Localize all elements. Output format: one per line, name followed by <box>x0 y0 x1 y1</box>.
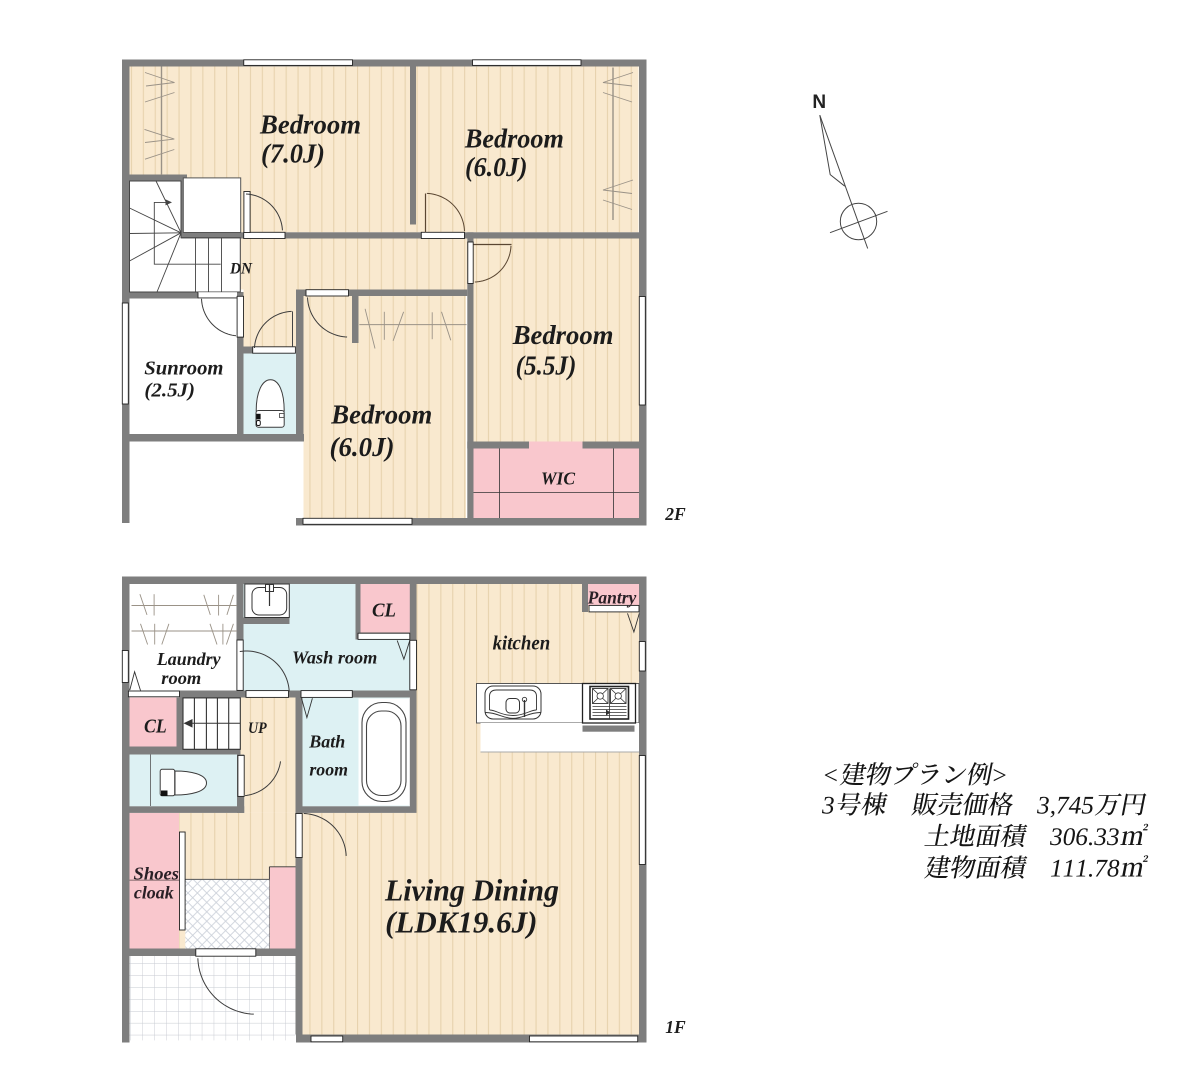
svg-text:Bedroom: Bedroom <box>259 110 361 140</box>
svg-text:Bedroom: Bedroom <box>464 124 564 154</box>
svg-text:WIC: WIC <box>541 469 576 489</box>
svg-text:Bath: Bath <box>308 732 345 752</box>
svg-text:cloak: cloak <box>134 883 174 903</box>
svg-text:UP: UP <box>248 720 267 737</box>
svg-text:Wash room: Wash room <box>292 648 377 668</box>
svg-text:CL: CL <box>372 600 396 622</box>
svg-text:room: room <box>161 668 201 688</box>
svg-text:Pantry: Pantry <box>587 588 637 608</box>
svg-text:Shoes: Shoes <box>134 864 180 884</box>
svg-text:1F: 1F <box>665 1017 686 1037</box>
svg-text:Sunroom: Sunroom <box>144 358 223 380</box>
svg-text:Laundry: Laundry <box>156 649 222 669</box>
svg-text:(5.5J): (5.5J) <box>516 351 577 381</box>
svg-text:(7.0J): (7.0J) <box>261 139 325 169</box>
svg-text:Bedroom: Bedroom <box>330 400 432 430</box>
svg-text:(6.0J): (6.0J) <box>330 432 395 462</box>
svg-text:Living Dining: Living Dining <box>384 873 559 908</box>
svg-text:(6.0J): (6.0J) <box>465 152 528 182</box>
svg-text:room: room <box>309 760 348 780</box>
svg-text:CL: CL <box>144 716 167 738</box>
svg-text:kitchen: kitchen <box>493 634 551 655</box>
svg-text:Bedroom: Bedroom <box>512 320 614 350</box>
svg-text:2F: 2F <box>664 504 686 524</box>
svg-text:(LDK19.6J): (LDK19.6J) <box>385 905 537 940</box>
svg-text:(2.5J): (2.5J) <box>144 380 195 402</box>
svg-text:N: N <box>812 92 826 113</box>
svg-text:DN: DN <box>229 261 253 278</box>
